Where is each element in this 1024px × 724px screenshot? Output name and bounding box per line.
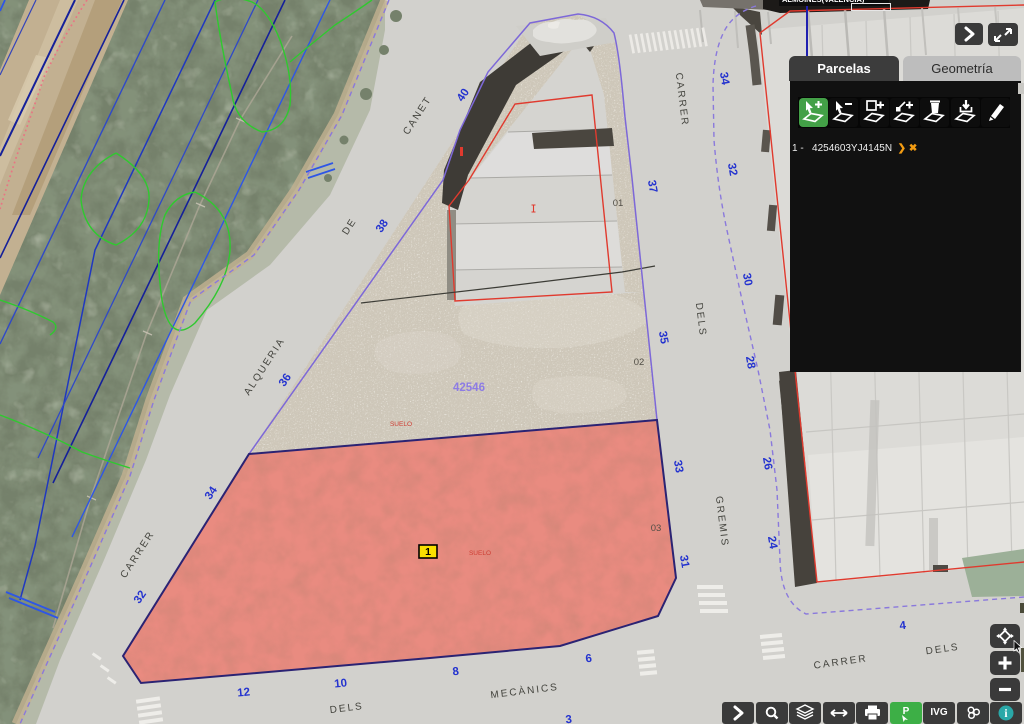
svg-text:33: 33	[671, 459, 685, 474]
svg-text:32: 32	[725, 162, 739, 177]
svg-text:3: 3	[565, 714, 573, 724]
svg-text:03: 03	[651, 523, 662, 534]
svg-text:26: 26	[760, 456, 774, 471]
svg-text:P: P	[902, 706, 909, 717]
svg-text:SUELO: SUELO	[469, 550, 491, 557]
svg-text:30: 30	[740, 272, 754, 287]
svg-text:SUELO: SUELO	[390, 421, 412, 428]
svg-text:10: 10	[334, 677, 348, 690]
svg-text:12: 12	[237, 686, 251, 699]
svg-text:02: 02	[634, 357, 645, 368]
svg-text:37: 37	[645, 179, 659, 194]
svg-text:6: 6	[585, 653, 593, 666]
svg-text:42546: 42546	[453, 382, 485, 394]
svg-text:1: 1	[425, 546, 431, 558]
svg-text:01: 01	[613, 198, 624, 209]
